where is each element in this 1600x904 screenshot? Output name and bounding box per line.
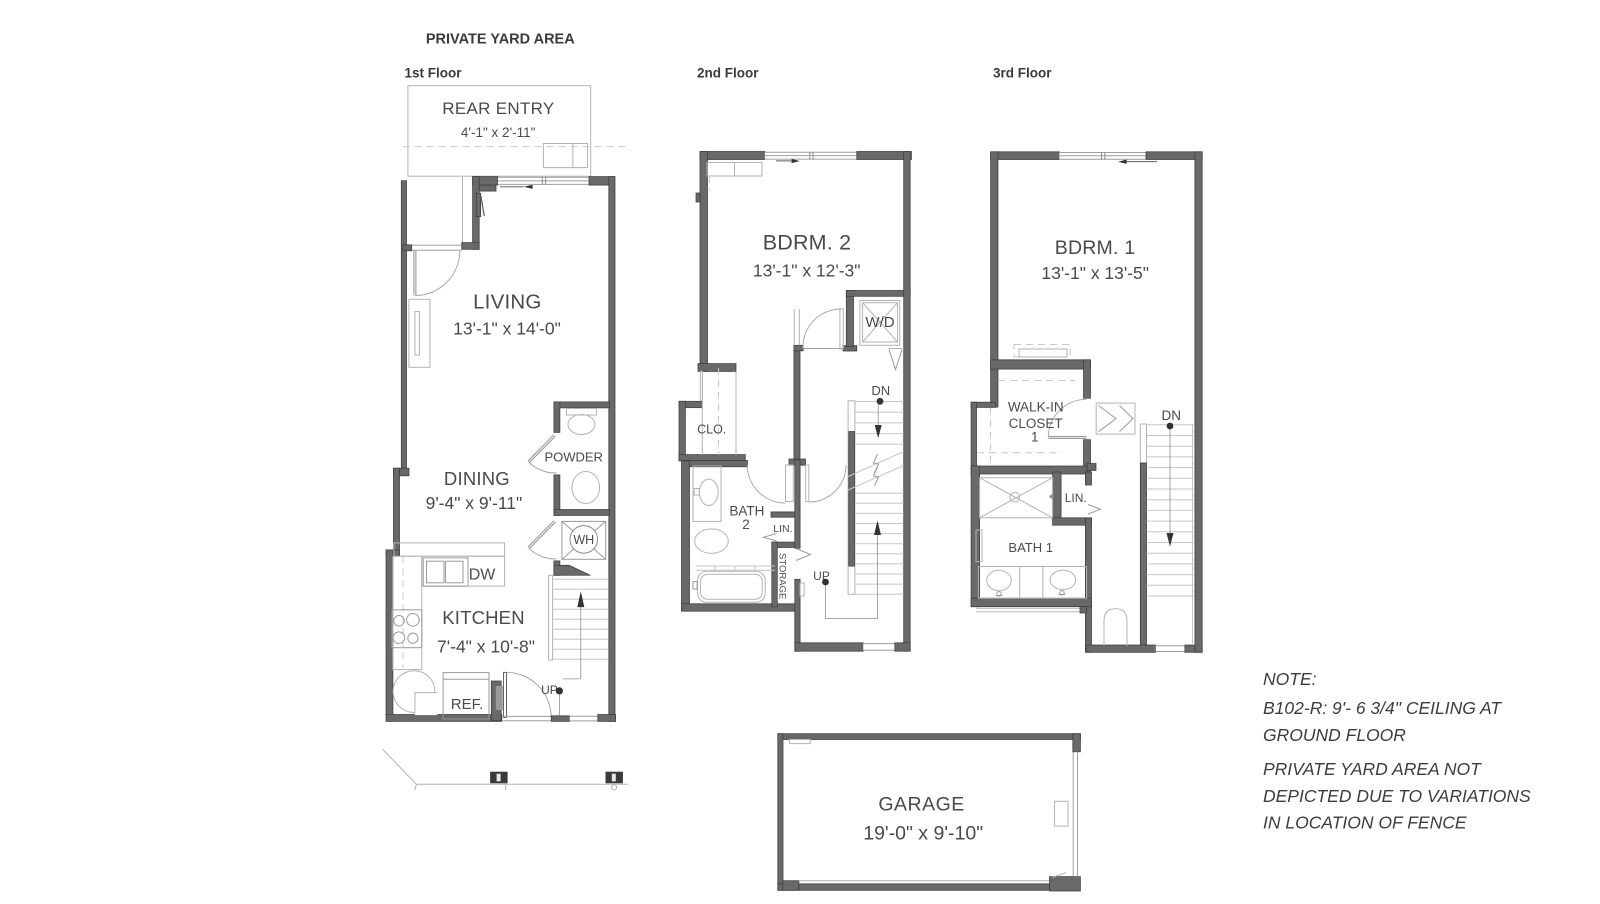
- svg-text:3rd Floor: 3rd Floor: [993, 66, 1052, 81]
- svg-text:POWDER: POWDER: [544, 450, 603, 465]
- svg-text:BATH 1: BATH 1: [1008, 540, 1053, 555]
- svg-text:LIN.: LIN.: [1065, 491, 1087, 505]
- svg-text:PRIVATE YARD AREA: PRIVATE YARD AREA: [426, 32, 575, 48]
- svg-text:9'-4" x 9'-11": 9'-4" x 9'-11": [426, 493, 523, 513]
- svg-text:GARAGE: GARAGE: [878, 794, 964, 816]
- svg-text:GROUND FLOOR: GROUND FLOOR: [1263, 725, 1406, 745]
- svg-text:2: 2: [742, 517, 750, 532]
- svg-text:1st Floor: 1st Floor: [405, 66, 463, 81]
- svg-text:DN: DN: [871, 383, 890, 398]
- svg-text:NOTE:: NOTE:: [1263, 669, 1317, 689]
- svg-text:LIVING: LIVING: [473, 291, 541, 314]
- svg-text:UP: UP: [541, 683, 558, 697]
- svg-text:DW: DW: [469, 566, 497, 583]
- svg-text:W/D: W/D: [865, 314, 894, 331]
- svg-text:IN LOCATION OF FENCE: IN LOCATION OF FENCE: [1263, 813, 1467, 833]
- svg-text:13'-1" x 12'-3": 13'-1" x 12'-3": [753, 261, 861, 281]
- svg-text:DINING: DINING: [444, 468, 510, 489]
- svg-text:DEPICTED DUE TO VARIATIONS: DEPICTED DUE TO VARIATIONS: [1263, 786, 1531, 806]
- svg-text:7'-4" x 10'-8": 7'-4" x 10'-8": [437, 637, 535, 657]
- svg-text:19'-0" x 9'-10": 19'-0" x 9'-10": [863, 822, 983, 844]
- svg-text:WALK-IN: WALK-IN: [1008, 400, 1064, 415]
- svg-text:STORAGE: STORAGE: [777, 553, 788, 599]
- svg-text:CLO.: CLO.: [697, 422, 726, 436]
- svg-text:4'-1" x 2'-11": 4'-1" x 2'-11": [461, 125, 536, 140]
- svg-text:WH: WH: [573, 533, 594, 547]
- svg-text:REAR ENTRY: REAR ENTRY: [442, 99, 554, 118]
- svg-text:13'-1" x 13'-5": 13'-1" x 13'-5": [1041, 263, 1149, 283]
- svg-text:REF.: REF.: [451, 696, 484, 713]
- svg-text:1: 1: [1031, 429, 1039, 444]
- svg-text:BDRM. 1: BDRM. 1: [1055, 237, 1136, 259]
- svg-text:BDRM. 2: BDRM. 2: [763, 231, 852, 255]
- svg-text:PRIVATE YARD AREA NOT: PRIVATE YARD AREA NOT: [1263, 759, 1482, 779]
- svg-text:KITCHEN: KITCHEN: [442, 607, 525, 628]
- svg-text:DN: DN: [1162, 408, 1182, 423]
- svg-text:2nd Floor: 2nd Floor: [697, 66, 759, 81]
- svg-text:B102-R: 9'- 6 3/4" CEILING AT: B102-R: 9'- 6 3/4" CEILING AT: [1263, 698, 1502, 718]
- svg-text:13'-1" x 14'-0": 13'-1" x 14'-0": [453, 319, 561, 339]
